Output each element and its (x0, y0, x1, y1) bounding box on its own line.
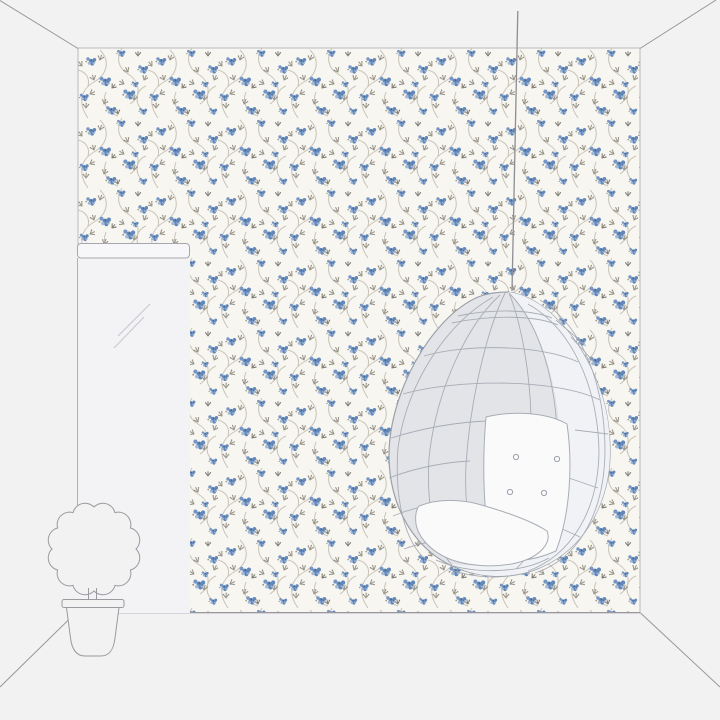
mirror-frame-bar (78, 244, 190, 259)
plant-foliage (48, 503, 139, 594)
room-scene: Room mockup: floral trail wallpaper wall… (0, 0, 720, 720)
room-scene-canvas: Floral trail wallpaper wall Floor and wa… (0, 0, 720, 720)
